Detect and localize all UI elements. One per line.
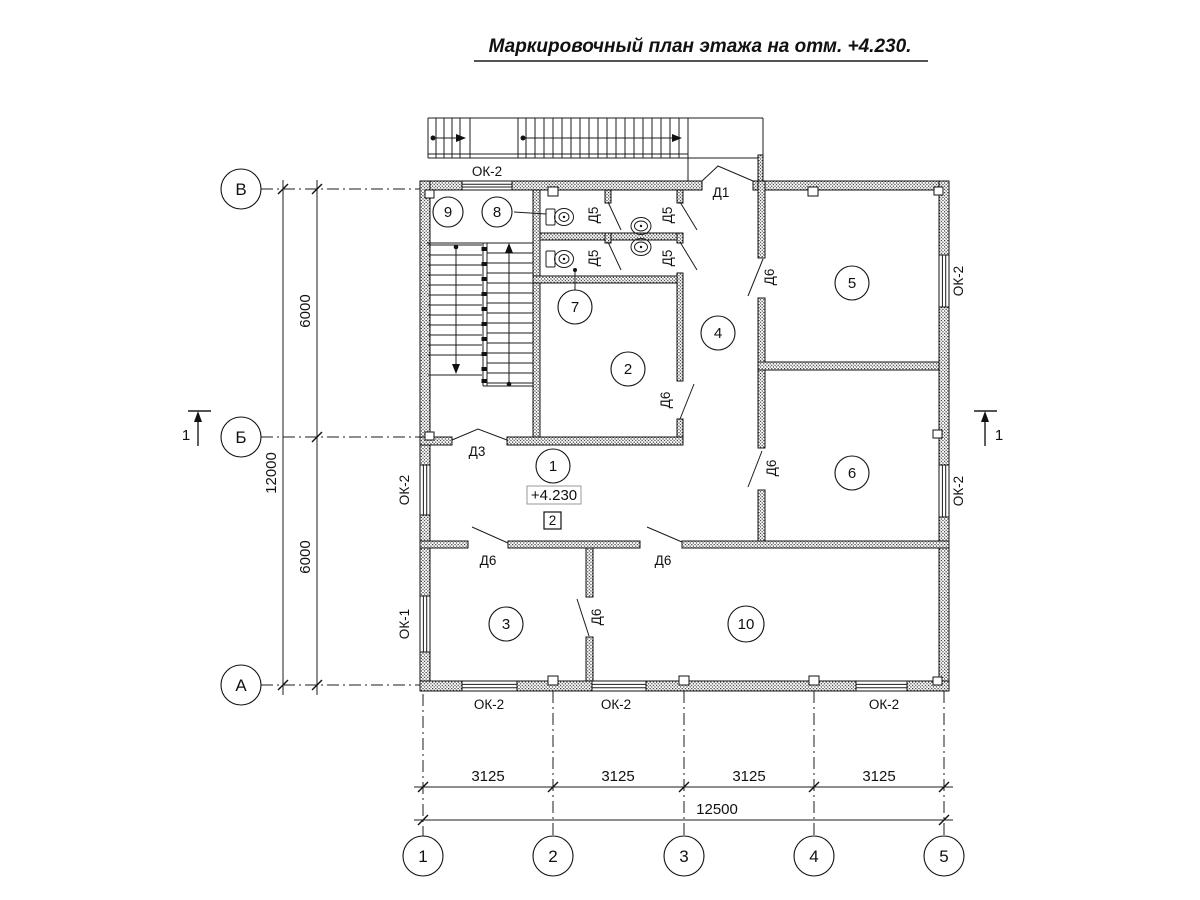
- axis-row-a: А: [235, 676, 247, 695]
- dim-width-total: 12500: [696, 801, 738, 818]
- door-mark-d3: Д3: [469, 444, 486, 459]
- dim-bay-4: 3125: [862, 768, 895, 785]
- floor-plan-svg: Маркировочный план этажа на отм. +4.230.: [0, 0, 1200, 900]
- room-annotations: 1 2 3 4 5 6 7 8 9 10 +4.230 2: [433, 197, 869, 642]
- axis-col-5: 5: [939, 847, 948, 866]
- window-mark-ok2-bottom-3: ОК-2: [869, 697, 899, 712]
- door-mark-d6: Д6: [655, 553, 672, 568]
- door-mark-d6: Д6: [589, 609, 604, 626]
- section-mark-left: 1: [182, 411, 211, 446]
- toilet-fixture-2: [546, 251, 574, 268]
- elevation-value: +4.230: [531, 487, 577, 504]
- door-mark-d6: Д6: [480, 553, 497, 568]
- room-number-7: 7: [571, 299, 579, 316]
- drawing-title: Маркировочный план этажа на отм. +4.230.: [489, 36, 912, 57]
- room-number-6: 6: [848, 465, 856, 482]
- window-mark-ok2-top: ОК-2: [472, 164, 502, 179]
- door-mark-d6: Д6: [658, 392, 673, 409]
- room-number-2: 2: [624, 361, 632, 378]
- windows: [420, 181, 949, 691]
- window-mark-ok2-left: ОК-2: [397, 475, 412, 505]
- room-number-3: 3: [502, 616, 510, 633]
- section-mark-right: 1: [974, 411, 1003, 446]
- dim-depth-total: 12000: [263, 452, 280, 494]
- window-mark-ok2-right-mid: ОК-2: [951, 476, 966, 506]
- door-mark-d6: Д6: [762, 269, 777, 286]
- axis-row-b: Б: [235, 428, 246, 447]
- room-number-10: 10: [738, 616, 755, 633]
- axis-col-1: 1: [418, 847, 427, 866]
- dim-bay-2: 3125: [601, 768, 634, 785]
- door-mark-d5: Д5: [586, 250, 601, 267]
- dim-depth-lower: 6000: [297, 540, 314, 573]
- floor-plan-sheet: Маркировочный план этажа на отм. +4.230.: [0, 0, 1200, 900]
- window-mark-ok2-bottom-2: ОК-2: [601, 697, 631, 712]
- dim-depth-upper: 6000: [297, 294, 314, 327]
- sink-fixture-1: [631, 218, 651, 235]
- door-labels: Д1 Д3 Д5 Д5 Д5 Д5 Д6 Д6 Д6 Д6 Д6 Д6: [469, 185, 779, 625]
- axis-row-v: В: [235, 180, 246, 199]
- walls: [420, 181, 949, 691]
- door-mark-d1: Д1: [713, 185, 730, 200]
- sink-fixture-2: [631, 239, 651, 256]
- axis-col-2: 2: [548, 847, 557, 866]
- window-mark-ok2-bottom-1: ОК-2: [474, 697, 504, 712]
- room-number-9: 9: [444, 204, 452, 221]
- window-mark-ok2-right-top: ОК-2: [951, 266, 966, 296]
- section-number: 1: [182, 427, 190, 444]
- room-number-5: 5: [848, 275, 856, 292]
- dim-bay-1: 3125: [471, 768, 504, 785]
- dim-bay-3: 3125: [732, 768, 765, 785]
- axis-col-3: 3: [679, 847, 688, 866]
- column-markers: [425, 187, 943, 685]
- room-number-8: 8: [493, 204, 501, 221]
- toilet-fixture-1: [546, 209, 574, 226]
- room-number-4: 4: [714, 325, 722, 342]
- window-mark-ok1-left: ОК-1: [397, 609, 412, 639]
- interior-stair: [427, 243, 533, 386]
- section-number: 1: [995, 427, 1003, 444]
- door-mark-d6: Д6: [764, 460, 779, 477]
- door-mark-d5: Д5: [660, 207, 675, 224]
- door-mark-d5: Д5: [586, 207, 601, 224]
- finish-badge-value: 2: [549, 513, 557, 528]
- axis-col-4: 4: [809, 847, 818, 866]
- door-mark-d5: Д5: [660, 250, 675, 267]
- room-number-1: 1: [549, 458, 557, 475]
